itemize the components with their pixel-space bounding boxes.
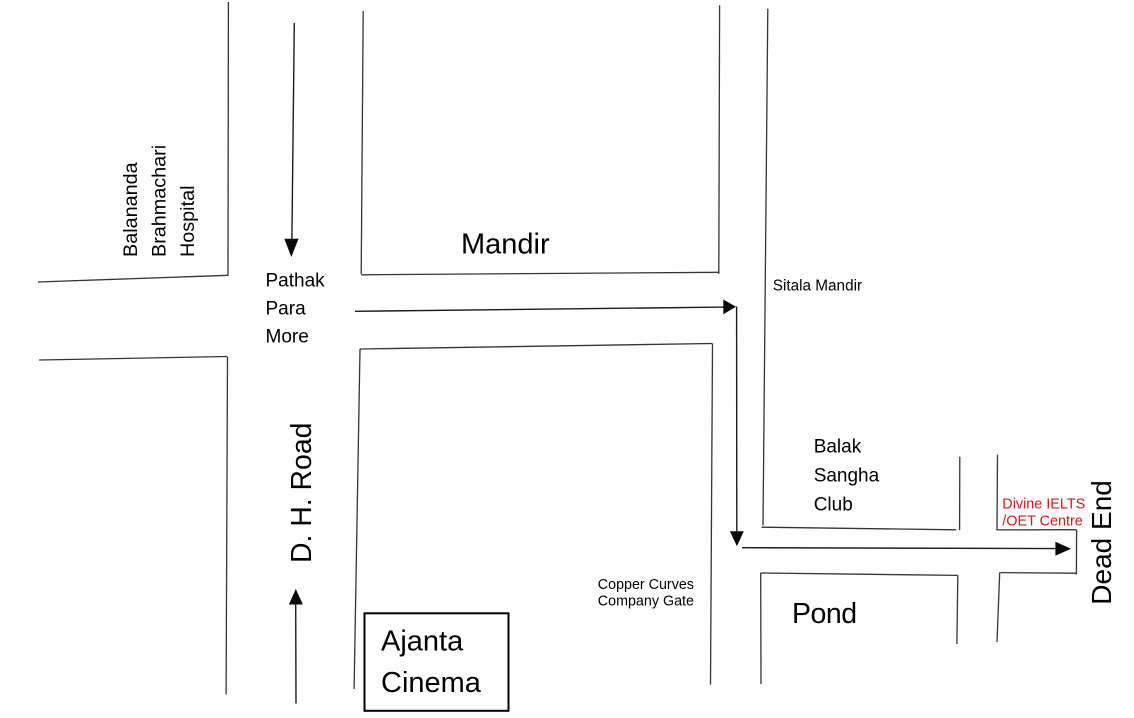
svg-text:Mandir: Mandir xyxy=(461,228,550,260)
svg-text:More: More xyxy=(266,327,309,348)
svg-text:Pond: Pond xyxy=(792,598,857,630)
svg-text:Dead End: Dead End xyxy=(1086,480,1117,605)
svg-text:Copper Curves: Copper Curves xyxy=(598,577,694,593)
svg-text:D. H. Road: D. H. Road xyxy=(286,423,318,563)
svg-text:Sangha: Sangha xyxy=(814,465,880,486)
svg-text:Cinema: Cinema xyxy=(381,667,482,699)
svg-text:Company Gate: Company Gate xyxy=(598,594,694,610)
svg-text:Balananda: Balananda xyxy=(120,162,142,257)
svg-text:Club: Club xyxy=(814,495,853,516)
svg-text:Hospital: Hospital xyxy=(177,186,199,257)
svg-text:/OET Centre: /OET Centre xyxy=(1002,513,1083,529)
svg-text:Para: Para xyxy=(266,299,307,320)
svg-text:Pathak: Pathak xyxy=(266,271,326,292)
svg-text:Balak: Balak xyxy=(814,436,862,457)
svg-text:Ajanta: Ajanta xyxy=(381,626,464,658)
svg-text:Sitala Mandir: Sitala Mandir xyxy=(773,277,862,294)
svg-text:Brahmachari: Brahmachari xyxy=(149,145,171,257)
svg-text:Divine IELTS: Divine IELTS xyxy=(1002,496,1085,512)
